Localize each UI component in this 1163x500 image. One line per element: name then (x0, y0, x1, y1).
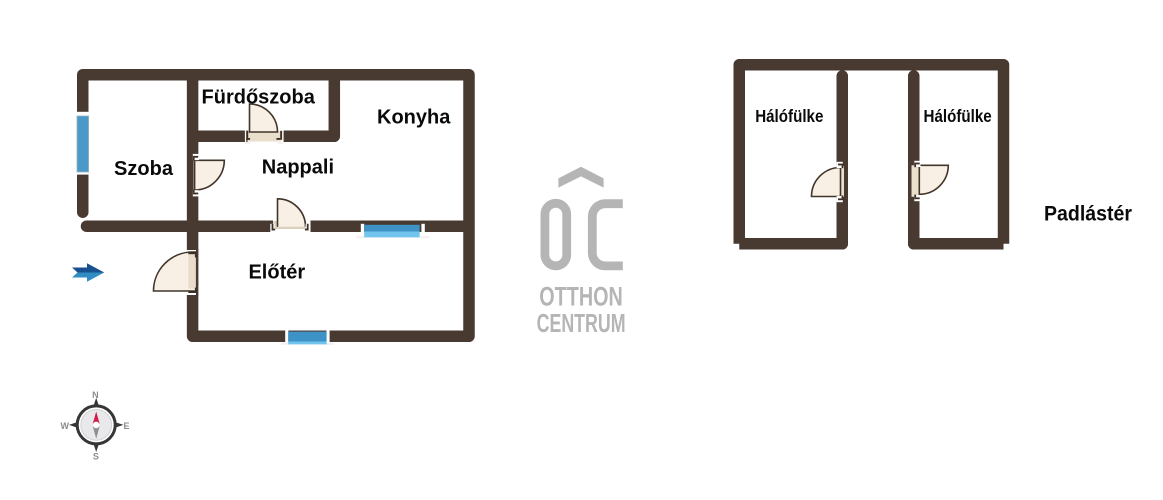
svg-text:Hálófülke: Hálófülke (755, 106, 823, 126)
svg-text:Konyha: Konyha (377, 107, 451, 129)
svg-text:S: S (93, 452, 99, 462)
svg-text:Fürdőszoba: Fürdőszoba (202, 87, 316, 109)
svg-text:W: W (61, 421, 70, 431)
svg-text:Előtér: Előtér (248, 262, 305, 284)
svg-text:Nappali: Nappali (262, 157, 334, 179)
svg-text:OTTHON: OTTHON (539, 281, 623, 311)
svg-text:Hálófülke: Hálófülke (924, 106, 992, 126)
svg-text:E: E (123, 421, 129, 431)
svg-text:Padlástér: Padlástér (1044, 203, 1132, 226)
svg-text:CENTRUM: CENTRUM (537, 310, 626, 338)
svg-text:N: N (92, 390, 99, 400)
svg-text:Szoba: Szoba (114, 158, 174, 180)
